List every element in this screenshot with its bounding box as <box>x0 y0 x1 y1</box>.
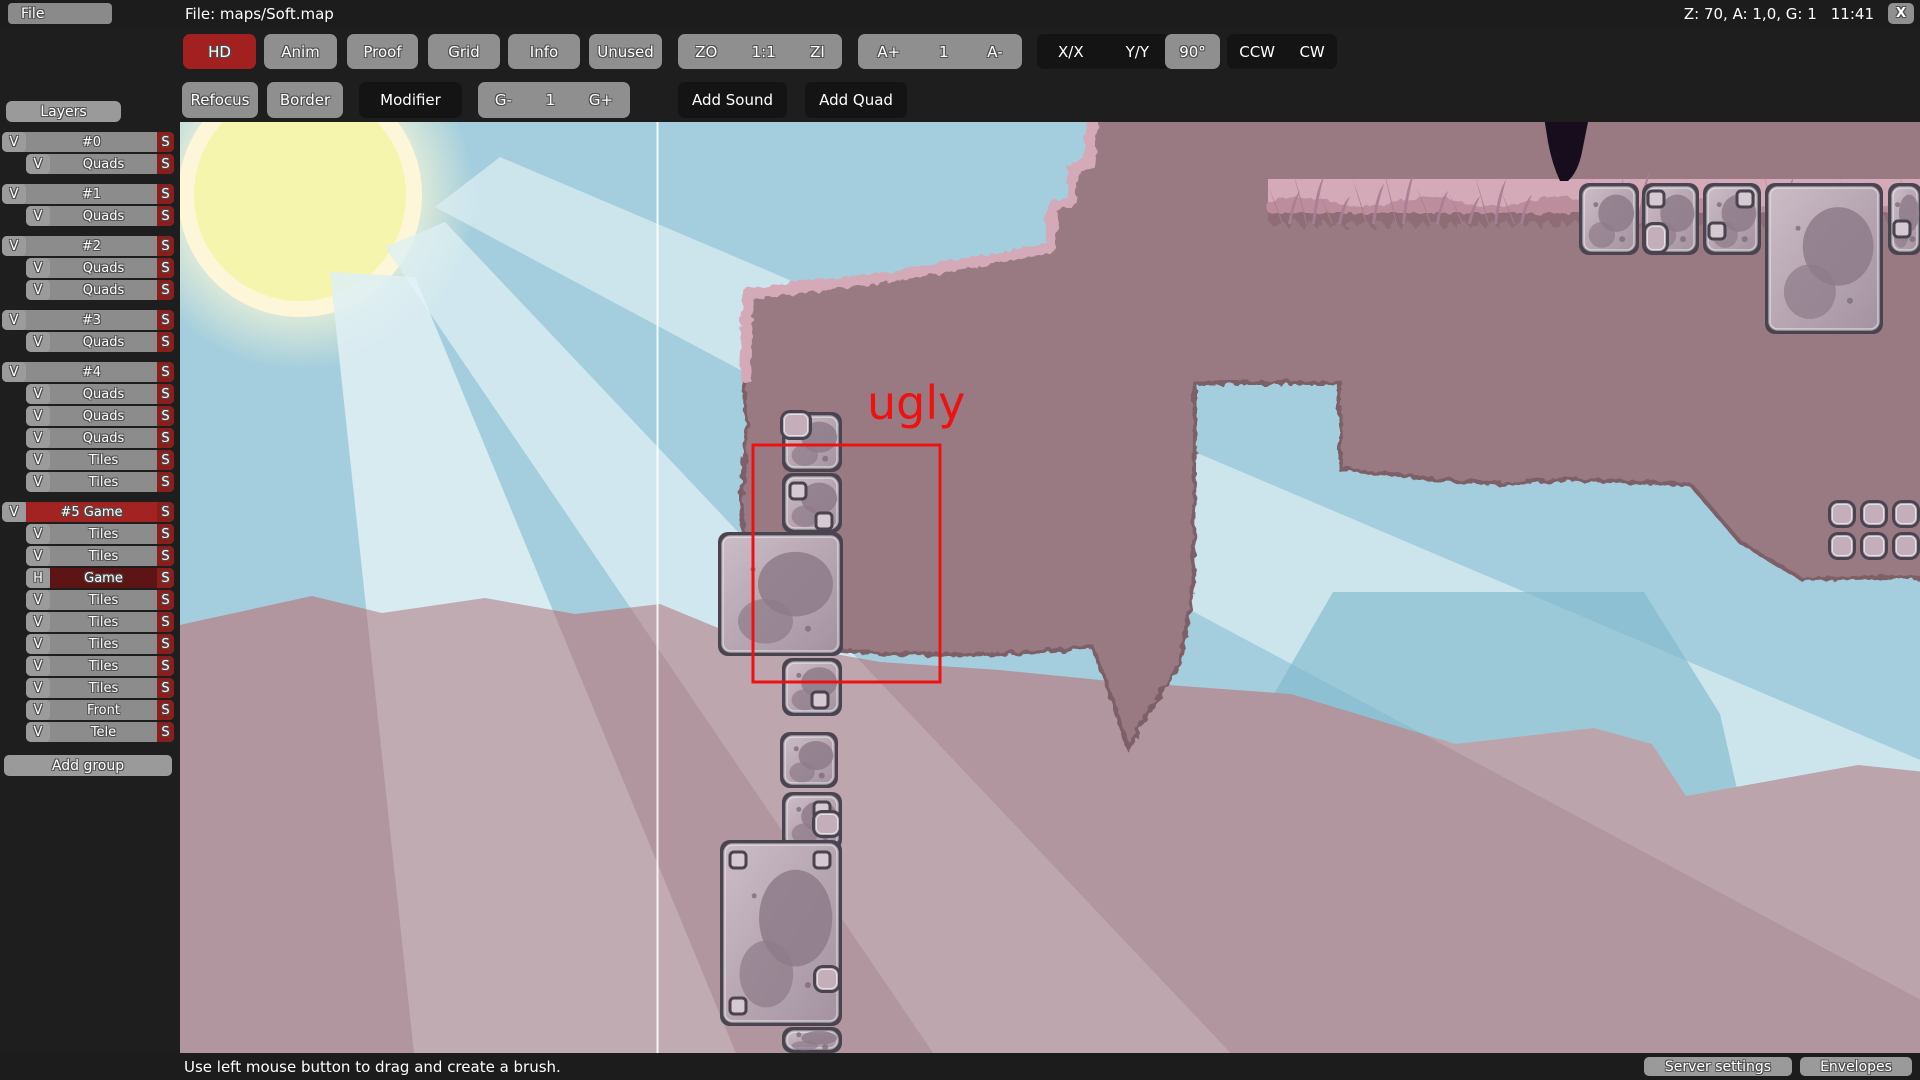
layer-label[interactable]: #2 <box>26 236 157 256</box>
toolbar-group-xx-yy[interactable]: X/XY/Y <box>1037 34 1170 69</box>
layer-select-button[interactable]: S <box>157 332 174 352</box>
layer-group-4: V#4SVQuadsSVQuadsSVQuadsSVTilesSVTilesS <box>0 362 180 492</box>
layer-label[interactable]: Tiles <box>50 590 157 610</box>
layer-select-button[interactable]: S <box>157 700 174 720</box>
toolbar-button-1[interactable]: 1 <box>939 43 949 61</box>
toolbar-button-info[interactable]: Info <box>508 34 580 69</box>
plain-tile <box>1860 532 1888 560</box>
toolbar-button-zo[interactable]: ZO <box>695 43 717 61</box>
plain-tile <box>813 965 841 993</box>
layer-label[interactable]: #4 <box>26 362 157 382</box>
stone-tile <box>782 1027 842 1053</box>
toolbar-button-refocus[interactable]: Refocus <box>182 82 258 118</box>
layer-row[interactable]: VQuadsS <box>26 280 174 300</box>
toolbar-button-modifier[interactable]: Modifier <box>359 82 462 118</box>
layer-select-button[interactable]: S <box>157 450 174 470</box>
layers-header-button[interactable]: Layers <box>6 101 121 122</box>
status-hint: Use left mouse button to drag and create… <box>184 1053 561 1080</box>
layer-select-button[interactable]: S <box>157 384 174 404</box>
file-menu-button[interactable]: File <box>8 3 112 24</box>
layer-select-button[interactable]: S <box>157 568 174 588</box>
toolbar-group-zo-11-zi[interactable]: ZO1:1ZI <box>678 34 842 69</box>
tile-rivet <box>814 852 830 868</box>
layer-row[interactable]: VTilesS <box>26 634 174 654</box>
visibility-toggle-button[interactable]: V <box>26 678 50 698</box>
stone-tile <box>1765 183 1883 334</box>
toolbar-button-label: Info <box>530 43 558 61</box>
layer-label[interactable]: Tiles <box>50 634 157 654</box>
layer-label[interactable]: Quads <box>50 154 157 174</box>
status-bar: Use left mouse button to drag and create… <box>0 1053 1920 1080</box>
toolbar-button-ccw[interactable]: CCW <box>1239 43 1275 61</box>
visibility-toggle-button[interactable]: V <box>2 502 26 522</box>
visibility-toggle-button[interactable]: V <box>26 206 50 226</box>
toolbar-button-11[interactable]: 1:1 <box>752 43 776 61</box>
layer-label[interactable]: Quads <box>50 258 157 278</box>
visibility-toggle-button[interactable]: V <box>26 722 50 742</box>
layer-label[interactable]: Game <box>50 568 157 588</box>
visibility-toggle-button[interactable]: V <box>26 656 50 676</box>
stone-tile <box>720 840 842 1026</box>
visibility-toggle-button[interactable]: V <box>26 450 50 470</box>
toolbar-button-a[interactable]: A+ <box>877 43 900 61</box>
toolbar-button-label: Border <box>280 91 330 109</box>
visibility-toggle-button[interactable]: V <box>26 612 50 632</box>
layer-group-5game: V#5 GameSVTilesSVTilesSHGameSVTilesSVTil… <box>0 502 180 742</box>
toolbar-button-label: Proof <box>363 43 401 61</box>
layer-row[interactable]: VFrontS <box>26 700 174 720</box>
tile-rivet <box>816 513 832 529</box>
toolbar-button-label: Modifier <box>380 91 441 109</box>
layer-row[interactable]: VTilesS <box>26 472 174 492</box>
layer-row[interactable]: VQuadsS <box>26 258 174 278</box>
tile-rivet <box>730 998 746 1014</box>
layer-group-row[interactable]: V#4S <box>2 362 174 382</box>
server-settings-button[interactable]: Server settings <box>1644 1057 1792 1076</box>
toolbar-button-border[interactable]: Border <box>267 82 343 118</box>
layer-group-row[interactable]: V#2S <box>2 236 174 256</box>
visibility-toggle-button[interactable]: V <box>26 700 50 720</box>
envelopes-button[interactable]: Envelopes <box>1800 1057 1912 1076</box>
layer-label[interactable]: Tiles <box>50 612 157 632</box>
layer-group-2: V#2SVQuadsSVQuadsS <box>0 236 180 300</box>
toolbar-button-g[interactable]: G+ <box>589 91 613 109</box>
layer-label[interactable]: Front <box>50 700 157 720</box>
map-canvas[interactable]: ugly <box>180 122 1920 1053</box>
plain-tile <box>1892 532 1920 560</box>
stone-tile <box>782 658 842 716</box>
stone-tile <box>718 532 843 656</box>
layer-label[interactable]: Tiles <box>50 656 157 676</box>
close-button[interactable]: X <box>1888 3 1914 24</box>
layer-select-button[interactable]: S <box>157 184 174 204</box>
layer-select-button[interactable]: S <box>157 524 174 544</box>
visibility-toggle-button[interactable]: V <box>26 590 50 610</box>
toolbar-zone: HDAnimProofGridInfoUnusedZO1:1ZIA+1A-X/X… <box>0 27 1920 122</box>
toolbar-button-90[interactable]: 90° <box>1165 34 1220 69</box>
map-annotation-text: ugly <box>867 376 965 430</box>
layer-label[interactable]: #5 Game <box>26 502 157 522</box>
layer-select-button[interactable]: S <box>157 132 174 152</box>
toolbar-button-label: Unused <box>597 43 654 61</box>
visibility-toggle-button[interactable]: V <box>26 406 50 426</box>
zoom-anim-grid-status: Z: 70, A: 1,0, G: 1 <box>1684 5 1817 23</box>
layer-select-button[interactable]: S <box>157 206 174 226</box>
stone-tile <box>782 473 842 533</box>
add-group-button[interactable]: Add group <box>4 755 172 776</box>
layer-label[interactable]: Quads <box>50 384 157 404</box>
title-bar: File File: maps/Soft.map Z: 70, A: 1,0, … <box>0 0 1920 27</box>
layer-row[interactable]: VQuadsS <box>26 332 174 352</box>
visibility-toggle-button[interactable]: V <box>26 332 50 352</box>
toolbar-button-cw[interactable]: CW <box>1299 43 1324 61</box>
toolbar-group-ccw-cw[interactable]: CCWCW <box>1227 34 1337 69</box>
window-title: File: maps/Soft.map <box>185 0 334 27</box>
layer-group-row[interactable]: V#3S <box>2 310 174 330</box>
toolbar-button-label: Add Sound <box>692 91 773 109</box>
layer-group-0: V#0SVQuadsS <box>0 132 180 174</box>
clock: 11:41 <box>1831 5 1874 23</box>
layer-select-button[interactable]: S <box>157 502 174 522</box>
layer-select-button[interactable]: S <box>157 236 174 256</box>
layer-label[interactable]: Tiles <box>50 450 157 470</box>
map-svg[interactable]: ugly <box>180 122 1920 1053</box>
layers-panel: Layers V#0SVQuadsSV#1SVQuadsSV#2SVQuadsS… <box>0 101 180 776</box>
visibility-toggle-button[interactable]: V <box>26 154 50 174</box>
visibility-toggle-button[interactable]: V <box>2 362 26 382</box>
layer-row[interactable]: VTeleS <box>26 722 174 742</box>
layer-select-button[interactable]: S <box>157 634 174 654</box>
toolbar-button-grid[interactable]: Grid <box>428 34 500 69</box>
layer-row[interactable]: VTilesS <box>26 524 174 544</box>
plain-tile <box>1892 500 1920 528</box>
map-editor-window: { "window": { "file_menu": "File", "titl… <box>0 0 1920 1080</box>
toolbar-button-label: Refocus <box>190 91 249 109</box>
layer-select-button[interactable]: S <box>157 310 174 330</box>
layer-group-row[interactable]: V#1S <box>2 184 174 204</box>
layer-label[interactable]: Quads <box>50 406 157 426</box>
layer-row[interactable]: VQuadsS <box>26 154 174 174</box>
visibility-toggle-button[interactable]: V <box>26 280 50 300</box>
layer-row[interactable]: VTilesS <box>26 656 174 676</box>
plain-tile <box>780 410 812 440</box>
tile-rivet <box>1737 191 1753 207</box>
layer-row[interactable]: VQuadsS <box>26 384 174 404</box>
layer-row[interactable]: VQuadsS <box>26 406 174 426</box>
toolbar-button-yy[interactable]: Y/Y <box>1126 43 1149 61</box>
layer-label[interactable]: #1 <box>26 184 157 204</box>
layer-select-button[interactable]: S <box>157 546 174 566</box>
toolbar-button-zi[interactable]: ZI <box>810 43 825 61</box>
layer-label[interactable]: Quads <box>50 280 157 300</box>
tile-rivet <box>1709 223 1725 239</box>
layer-label[interactable]: Tiles <box>50 472 157 492</box>
layer-label[interactable]: #3 <box>26 310 157 330</box>
toolbar-group-g--1-g[interactable]: G-1G+ <box>478 82 630 118</box>
visibility-toggle-button[interactable]: V <box>26 428 50 448</box>
toolbar-button-label: 90° <box>1179 43 1206 61</box>
layer-select-button[interactable]: S <box>157 258 174 278</box>
toolbar-button-a[interactable]: A- <box>987 43 1002 61</box>
toolbar-button-anim[interactable]: Anim <box>264 34 337 69</box>
plain-tile <box>812 810 842 838</box>
layer-row[interactable]: HGameS <box>26 568 174 588</box>
visibility-toggle-button[interactable]: V <box>26 472 50 492</box>
layer-row[interactable]: VTilesS <box>26 450 174 470</box>
layer-select-button[interactable]: S <box>157 590 174 610</box>
stone-tile <box>780 732 838 788</box>
visibility-toggle-button[interactable]: V <box>2 184 26 204</box>
hide-toggle-button[interactable]: H <box>26 568 50 588</box>
visibility-toggle-button[interactable]: V <box>2 310 26 330</box>
toolbar-button-unused[interactable]: Unused <box>589 34 662 69</box>
layer-row[interactable]: VTilesS <box>26 590 174 610</box>
layer-label[interactable]: Tiles <box>50 546 157 566</box>
layer-row[interactable]: VTilesS <box>26 678 174 698</box>
titlebar-right: Z: 70, A: 1,0, G: 1 11:41 X <box>1684 0 1914 27</box>
stone-tile <box>1579 183 1639 255</box>
layer-label[interactable]: #0 <box>26 132 157 152</box>
tile-rivet <box>1648 191 1664 207</box>
stone-tile <box>1888 183 1920 255</box>
layer-label[interactable]: Tele <box>50 722 157 742</box>
toolbar-button-proof[interactable]: Proof <box>347 34 418 69</box>
toolbar-button-1[interactable]: 1 <box>546 91 556 109</box>
layer-label[interactable]: Quads <box>50 206 157 226</box>
toolbar-button-xx[interactable]: X/X <box>1058 43 1084 61</box>
toolbar-button-label: Add Quad <box>819 91 893 109</box>
layer-select-button[interactable]: S <box>157 612 174 632</box>
visibility-toggle-button[interactable]: V <box>26 384 50 404</box>
visibility-toggle-button[interactable]: V <box>2 132 26 152</box>
layer-select-button[interactable]: S <box>157 722 174 742</box>
layer-select-button[interactable]: S <box>157 472 174 492</box>
file-menu-label: File <box>21 6 44 22</box>
toolbar-button-label: HD <box>208 43 231 61</box>
layer-row[interactable]: VQuadsS <box>26 206 174 226</box>
plain-tile <box>1828 500 1856 528</box>
visibility-toggle-button[interactable]: V <box>26 524 50 544</box>
toolbar-button-add-sound[interactable]: Add Sound <box>678 82 787 118</box>
layer-select-button[interactable]: S <box>157 428 174 448</box>
plain-tile <box>1860 500 1888 528</box>
visibility-toggle-button[interactable]: V <box>26 634 50 654</box>
plain-tile <box>1828 532 1856 560</box>
toolbar-button-hd[interactable]: HD <box>183 34 256 69</box>
layer-group-row[interactable]: V#0S <box>2 132 174 152</box>
tile-rivet <box>790 483 806 499</box>
tile-rivet <box>812 692 828 708</box>
layer-row[interactable]: VTilesS <box>26 546 174 566</box>
layer-label[interactable]: Quads <box>50 332 157 352</box>
layer-select-button[interactable]: S <box>157 656 174 676</box>
visibility-toggle-button[interactable]: V <box>26 546 50 566</box>
plain-tile <box>1643 222 1669 254</box>
layer-list: V#0SVQuadsSV#1SVQuadsSV#2SVQuadsSVQuadsS… <box>0 132 180 742</box>
stone-tile <box>1703 183 1761 255</box>
tile-rivet <box>1894 221 1910 237</box>
tile-rivet <box>730 852 746 868</box>
layer-group-3: V#3SVQuadsS <box>0 310 180 352</box>
layer-label[interactable]: Quads <box>50 428 157 448</box>
layer-select-button[interactable]: S <box>157 406 174 426</box>
toolbar-button-add-quad[interactable]: Add Quad <box>805 82 907 118</box>
toolbar-group-a-1-a-[interactable]: A+1A- <box>858 34 1022 69</box>
visibility-toggle-button[interactable]: V <box>2 236 26 256</box>
vertical-guide-line <box>657 122 659 1053</box>
toolbar-button-g[interactable]: G- <box>495 91 512 109</box>
layer-row[interactable]: VTilesS <box>26 612 174 632</box>
toolbar-button-label: Anim <box>281 43 320 61</box>
visibility-toggle-button[interactable]: V <box>26 258 50 278</box>
layer-label[interactable]: Tiles <box>50 524 157 544</box>
layer-label[interactable]: Tiles <box>50 678 157 698</box>
layer-select-button[interactable]: S <box>157 678 174 698</box>
layer-group-row[interactable]: V#5 GameS <box>2 502 174 522</box>
layer-row[interactable]: VQuadsS <box>26 428 174 448</box>
layer-group-1: V#1SVQuadsS <box>0 184 180 226</box>
layer-select-button[interactable]: S <box>157 280 174 300</box>
toolbar-button-label: Grid <box>448 43 479 61</box>
layer-select-button[interactable]: S <box>157 154 174 174</box>
layer-select-button[interactable]: S <box>157 362 174 382</box>
